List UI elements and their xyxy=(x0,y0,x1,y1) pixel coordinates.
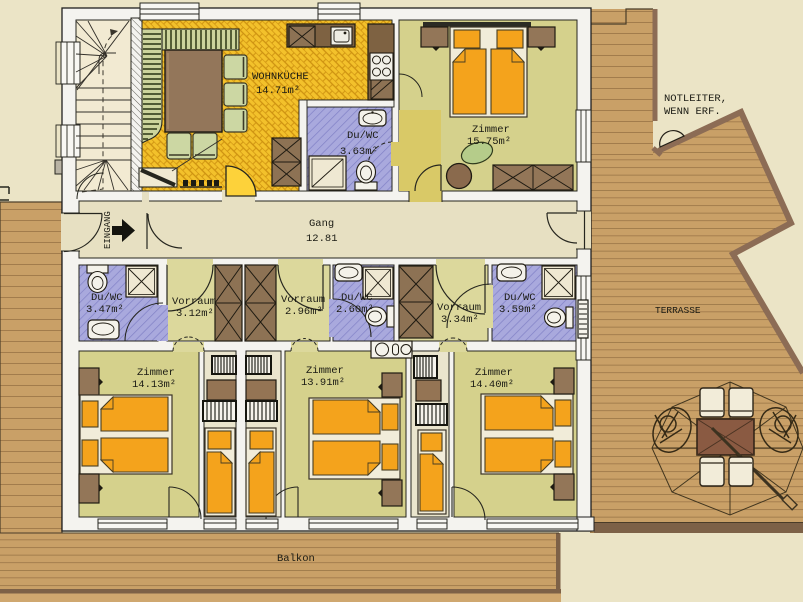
svg-text:3.12m²: 3.12m² xyxy=(176,308,214,320)
svg-text:Gang: Gang xyxy=(309,218,334,230)
svg-text:Vorraum: Vorraum xyxy=(172,296,216,308)
svg-text:WENN ERF.: WENN ERF. xyxy=(664,106,721,118)
svg-text:Vorraum: Vorraum xyxy=(281,294,325,306)
svg-text:Zimmer: Zimmer xyxy=(306,365,344,377)
svg-text:15.75m²: 15.75m² xyxy=(467,136,511,148)
svg-text:Zimmer: Zimmer xyxy=(472,124,510,136)
svg-text:Zimmer: Zimmer xyxy=(475,367,513,379)
svg-text:Balkon: Balkon xyxy=(277,553,315,565)
svg-text:12.81: 12.81 xyxy=(306,233,338,245)
svg-text:14.40m²: 14.40m² xyxy=(470,379,514,391)
svg-text:Vorraum: Vorraum xyxy=(437,302,481,314)
svg-text:Du/WC: Du/WC xyxy=(91,292,123,304)
svg-text:2.60m²: 2.60m² xyxy=(336,304,374,316)
svg-text:Du/WC: Du/WC xyxy=(347,130,379,142)
svg-text:TERRASSE: TERRASSE xyxy=(655,305,701,316)
svg-text:3.34m²: 3.34m² xyxy=(441,314,479,326)
svg-text:Zimmer: Zimmer xyxy=(137,367,175,379)
svg-text:14.71m²: 14.71m² xyxy=(256,85,300,97)
svg-text:EINGANG: EINGANG xyxy=(103,211,113,249)
svg-text:Du/WC: Du/WC xyxy=(341,292,373,304)
svg-text:NOTLEITER,: NOTLEITER, xyxy=(664,93,727,105)
svg-text:3.59m²: 3.59m² xyxy=(499,304,537,316)
svg-text:3.47m²: 3.47m² xyxy=(86,304,124,316)
svg-text:14.13m²: 14.13m² xyxy=(132,379,176,391)
svg-text:3.63m²: 3.63m² xyxy=(340,146,378,158)
svg-text:Du/WC: Du/WC xyxy=(504,292,536,304)
svg-text:2.96m²: 2.96m² xyxy=(285,306,323,318)
svg-text:13.91m²: 13.91m² xyxy=(301,377,345,389)
svg-text:WOHNKÜCHE: WOHNKÜCHE xyxy=(252,70,309,83)
